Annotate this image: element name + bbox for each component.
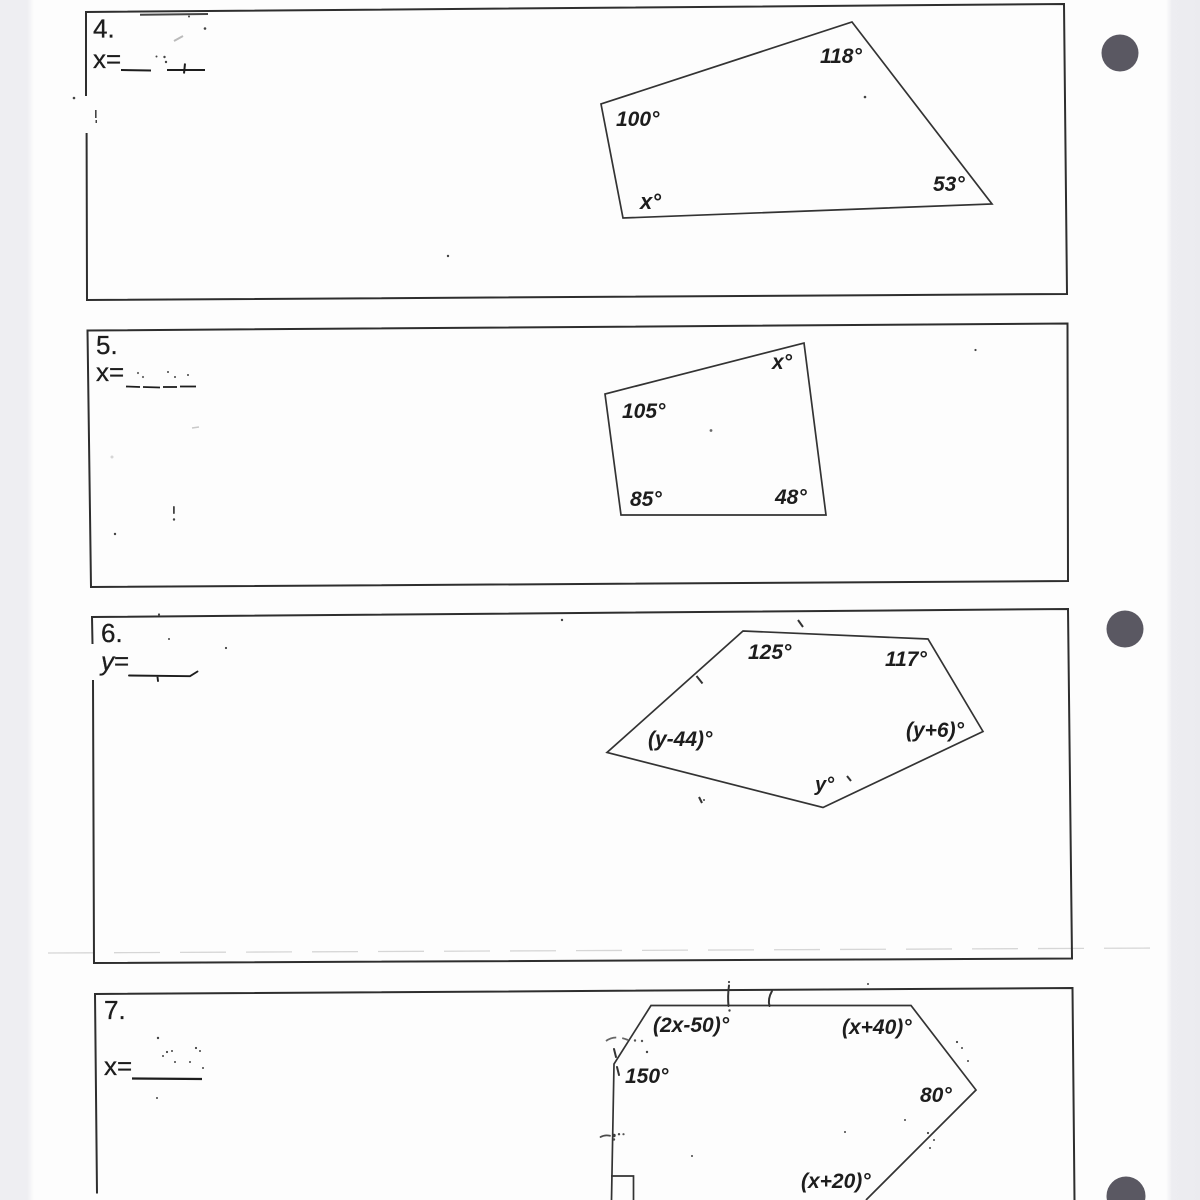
svg-text:5.: 5. <box>96 330 118 360</box>
svg-text:4.: 4. <box>93 14 115 44</box>
svg-text:6.: 6. <box>101 618 123 648</box>
svg-text:x=: x= <box>93 44 121 74</box>
svg-text:x=: x= <box>104 1051 132 1081</box>
svg-text:x=: x= <box>96 357 124 387</box>
svg-text:=: = <box>114 646 129 676</box>
svg-text:7.: 7. <box>104 995 126 1025</box>
